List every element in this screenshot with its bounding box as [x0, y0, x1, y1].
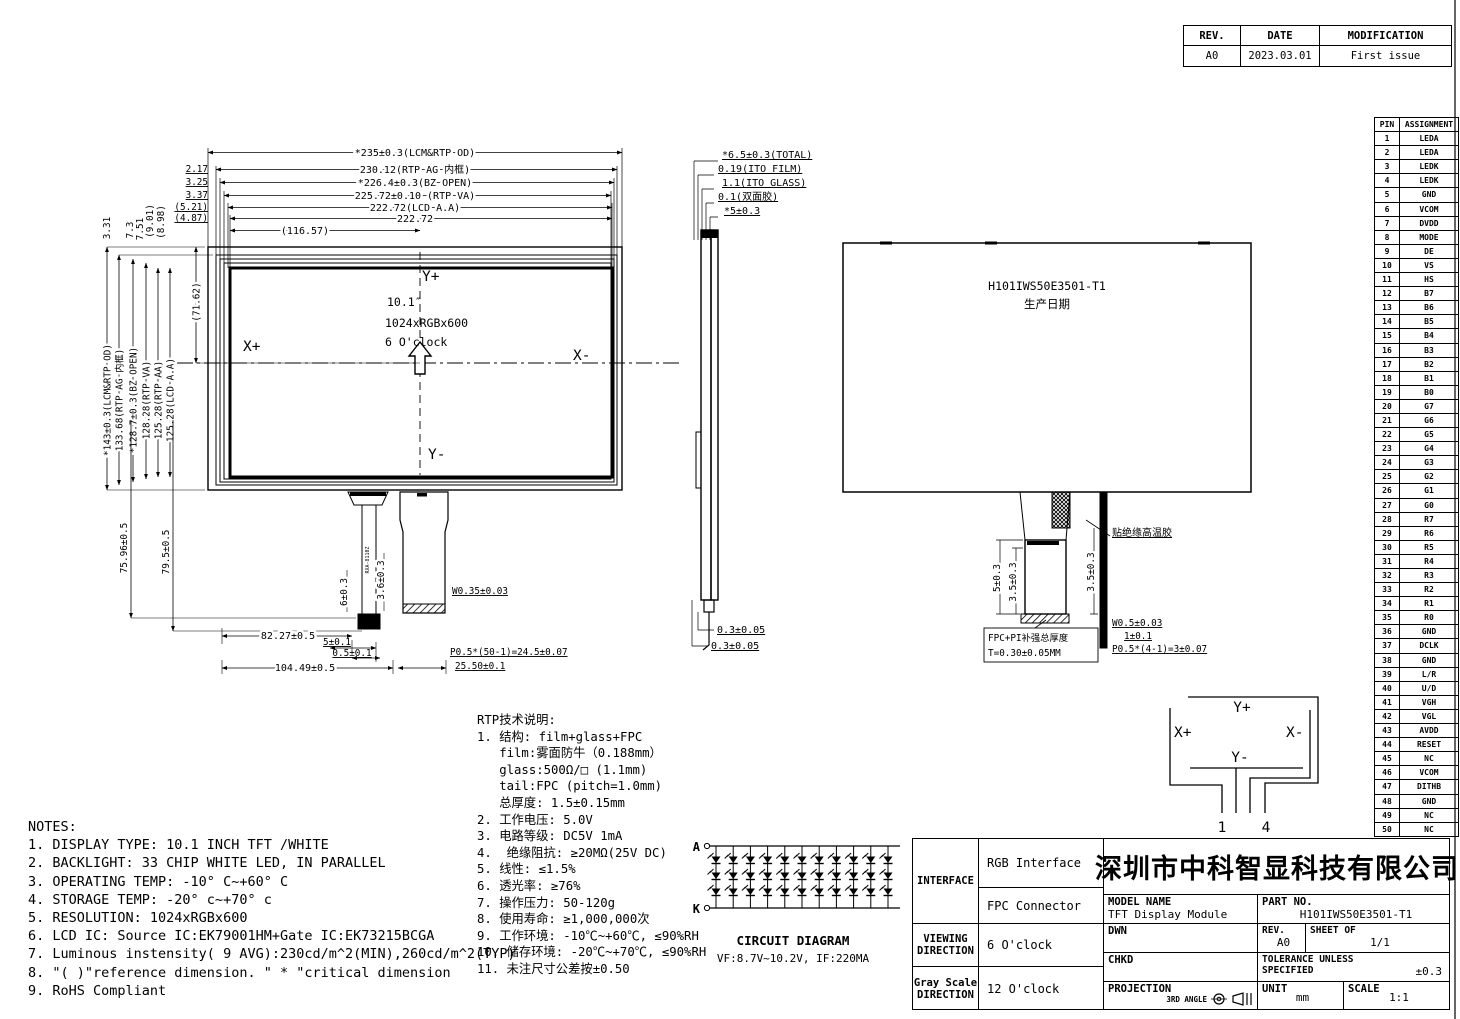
pin-number: 3 — [1375, 160, 1400, 174]
rtp-notes-lines: 1. 结构: film+glass+FPC film:雾面防牛（0.188mm）… — [477, 729, 706, 978]
pin-number: 45 — [1375, 752, 1400, 766]
pin-assignment: U/D — [1400, 681, 1459, 695]
note-line: film:雾面防牛（0.188mm） — [477, 745, 706, 762]
pin-number: 40 — [1375, 681, 1400, 695]
pin-number: 17 — [1375, 357, 1400, 371]
touch-panel-diagram: Y+ X+ X- Y- 1 4 — [1170, 697, 1318, 836]
pin-number: 48 — [1375, 794, 1400, 808]
pin-assignment: G5 — [1400, 428, 1459, 442]
pin-assignment: B3 — [1400, 343, 1459, 357]
tolerance-cell: TOLERANCE UNLESS SPECIFIED ±0.3 — [1257, 952, 1450, 981]
led-icon — [862, 853, 875, 864]
date-header: DATE — [1241, 26, 1320, 46]
pin-number: 12 — [1375, 287, 1400, 301]
dimension-label: 0.5±0.1 — [332, 648, 371, 659]
pin-assignment: VCOM — [1400, 766, 1459, 780]
main-fpc-tail — [400, 492, 448, 613]
table-row: 12B7 — [1375, 287, 1459, 301]
pin-header: PIN — [1375, 118, 1400, 132]
led-icon — [862, 869, 875, 880]
back-view: H101IWS50E3501-T1 生产日期 贴绝缘高温胶 5±0.3 3.5±… — [843, 243, 1251, 662]
pin-assignment: R7 — [1400, 512, 1459, 526]
dimension-label: 0.19(ITO FILM) — [718, 164, 802, 175]
pin-assignment: GND — [1400, 653, 1459, 667]
pin-assignment: VCOM — [1400, 202, 1459, 216]
notes-block: NOTES: 1. DISPLAY TYPE: 10.1 INCH TFT /W… — [28, 818, 516, 1000]
pin-number: 7 — [1375, 216, 1400, 230]
viewing-direction-value: 6 O'clock — [978, 923, 1103, 966]
table-row: REV. DATE MODIFICATION — [1184, 26, 1452, 46]
pin-assignment: B2 — [1400, 357, 1459, 371]
dimension-label: 104.49±0.5 — [275, 663, 335, 674]
pin-assignment: NC — [1400, 808, 1459, 822]
pin-number-label: 4 — [1262, 820, 1271, 836]
table-row: 11HS — [1375, 273, 1459, 287]
gray-scale-label-cell: Gray Scale DIRECTION — [912, 966, 978, 1010]
led-icon — [828, 853, 841, 864]
table-row: 17B2 — [1375, 357, 1459, 371]
dimension-label: 1.1(ITO GLASS) — [722, 178, 806, 189]
chkd-label: CHKD — [1108, 954, 1257, 966]
table-row: 15B4 — [1375, 329, 1459, 343]
table-row: 31R4 — [1375, 554, 1459, 568]
pin-number: 47 — [1375, 780, 1400, 794]
circuit-title: CIRCUIT DIAGRAM — [737, 933, 850, 948]
axis-label: X- — [573, 348, 590, 364]
note-line: 1. 结构: film+glass+FPC — [477, 729, 706, 746]
note-line: glass:500Ω/□ (1.1mm) — [477, 762, 706, 779]
unit-cell: UNIT mm — [1257, 981, 1343, 1010]
rev-header: REV. — [1184, 26, 1241, 46]
dimension-label: *128.7±0.3(BZ OPEN) — [129, 347, 140, 453]
pin-number: 23 — [1375, 442, 1400, 456]
pin-number: 35 — [1375, 611, 1400, 625]
table-row: 4LEDK — [1375, 174, 1459, 188]
pin-assignment: B6 — [1400, 301, 1459, 315]
dwn-label: DWN — [1108, 925, 1257, 937]
stiffener-label: T=0.30±0.05MM — [988, 648, 1061, 659]
pin-number: 36 — [1375, 625, 1400, 639]
pin-number: 27 — [1375, 498, 1400, 512]
pin-assignment: HS — [1400, 273, 1459, 287]
note-line: 4. STORAGE TEMP: -20° c~+70° c — [28, 891, 516, 909]
pin-number: 46 — [1375, 766, 1400, 780]
pin-assignment: LEDA — [1400, 146, 1459, 160]
dimension-label: 133.68(RTP AG 内框) — [114, 349, 126, 452]
pin-number: 29 — [1375, 526, 1400, 540]
led-icon — [759, 869, 772, 880]
led-icon — [828, 885, 841, 896]
pin-assignment: B5 — [1400, 315, 1459, 329]
pin-number: 49 — [1375, 808, 1400, 822]
pin-number: 4 — [1375, 174, 1400, 188]
led-icon — [776, 853, 789, 864]
led-icon — [880, 853, 893, 864]
table-row: 9DE — [1375, 244, 1459, 258]
led-icon — [759, 853, 772, 864]
tolerance-label-line2: SPECIFIED — [1262, 965, 1313, 978]
note-line: 2. BACKLIGHT: 33 CHIP WHITE LED, IN PARA… — [28, 854, 516, 872]
led-icon — [725, 853, 738, 864]
led-icon — [742, 869, 755, 880]
pin-number: 42 — [1375, 709, 1400, 723]
pin-number: 34 — [1375, 597, 1400, 611]
note-line: 4. 绝缘阻抗: ≥20MΩ(25V DC) — [477, 845, 706, 862]
table-row: 6VCOM — [1375, 202, 1459, 216]
pin-assignment: LEDK — [1400, 160, 1459, 174]
panel-resolution-label: 1024xRGBx600 — [385, 316, 468, 330]
part-no-label: PART NO. — [1262, 896, 1450, 908]
sheet-label: SHEET OF — [1310, 925, 1450, 936]
dimension-label: (4.87) — [174, 213, 208, 224]
pin-assignment: DE — [1400, 244, 1459, 258]
fpc-part-label: RXA-8110Z — [365, 546, 371, 573]
led-icon — [776, 869, 789, 880]
dimension-label: *5±0.3 — [724, 206, 760, 217]
pin-assignment: B4 — [1400, 329, 1459, 343]
pin-assignment: B1 — [1400, 371, 1459, 385]
dwn-cell: DWN — [1103, 923, 1257, 952]
gray-scale-label-line2: DIRECTION — [917, 989, 974, 1001]
pin-number: 24 — [1375, 456, 1400, 470]
pin-number: 8 — [1375, 230, 1400, 244]
led-icon — [794, 853, 807, 864]
pin-assignment: R4 — [1400, 554, 1459, 568]
table-row: 14B5 — [1375, 315, 1459, 329]
pin-number: 5 — [1375, 188, 1400, 202]
table-row: 43AVDD — [1375, 724, 1459, 738]
dimension-label: 230.12(RTP AG 内框) — [360, 163, 470, 176]
table-row: 2LEDA — [1375, 146, 1459, 160]
dimension-label: 5±0.1 — [323, 637, 351, 648]
rev-cell-value: A0 — [1262, 936, 1305, 949]
pin-assignment: B7 — [1400, 287, 1459, 301]
tolerance-value: ±0.3 — [1416, 965, 1443, 978]
gray-scale-label-line1: Gray Scale — [914, 977, 977, 989]
circuit-diagram: A K CIRCUIT DIAGRAM VF:8.7V~10.2V, IF:22… — [693, 840, 900, 965]
table-row: 33R2 — [1375, 583, 1459, 597]
table-row: 48GND — [1375, 794, 1459, 808]
part-no-value: H101IWS50E3501-T1 — [1262, 908, 1450, 921]
led-icon — [880, 869, 893, 880]
pin-number: 28 — [1375, 512, 1400, 526]
pin-assignment: NC — [1400, 822, 1459, 836]
note-line: 9. RoHS Compliant — [28, 982, 516, 1000]
stiffener-label: FPC+PI补强总厚度 — [988, 632, 1068, 644]
pin-number: 44 — [1375, 738, 1400, 752]
viewing-label-line2: DIRECTION — [917, 945, 974, 957]
dimension-label: P0.5*(50-1)=24.5±0.07 — [450, 647, 568, 658]
axis-label: X+ — [243, 339, 261, 355]
contact-fingers — [403, 604, 445, 613]
model-name-label: MODEL NAME — [1108, 896, 1257, 908]
pin-assignment: RESET — [1400, 738, 1459, 752]
pin-number: 30 — [1375, 540, 1400, 554]
notes-lines: 1. DISPLAY TYPE: 10.1 INCH TFT /WHITE2. … — [28, 836, 516, 1000]
dimension-label: (116.57) — [281, 226, 329, 237]
pin-number: 33 — [1375, 583, 1400, 597]
pin-number: 10 — [1375, 258, 1400, 272]
pin-assignment: R6 — [1400, 526, 1459, 540]
note-line: 6. LCD IC: Source IC:EK79001HM+Gate IC:E… — [28, 927, 516, 945]
dimension-label: (71.62) — [192, 282, 203, 321]
projection-cell: PROJECTION 3RD ANGLE — [1103, 981, 1257, 1010]
backlight-connector — [358, 614, 380, 629]
table-row: 44RESET — [1375, 738, 1459, 752]
rev-value: A0 — [1184, 46, 1241, 67]
note-line: 3. OPERATING TEMP: -10° C~+60° C — [28, 873, 516, 891]
rtp-notes-title: RTP技术说明: — [477, 712, 706, 729]
table-row: 36GND — [1375, 625, 1459, 639]
chkd-cell: CHKD — [1103, 952, 1257, 981]
pin-number: 39 — [1375, 667, 1400, 681]
note-line: 总厚度: 1.5±0.15mm — [477, 795, 706, 812]
led-icon — [794, 869, 807, 880]
esd-tape-patch — [1052, 492, 1070, 528]
dimension-label: 3.5±0.3 — [1008, 562, 1019, 601]
note-line: 8. 使用寿命: ≥1,000,000次 — [477, 911, 706, 928]
table-row: 37DCLK — [1375, 639, 1459, 653]
pin-number: 43 — [1375, 724, 1400, 738]
pin-number: 18 — [1375, 371, 1400, 385]
table-row: 19B0 — [1375, 385, 1459, 399]
interface-label: INTERFACE — [917, 875, 974, 887]
modification-value: First issue — [1320, 46, 1452, 67]
pin-assignment: GND — [1400, 794, 1459, 808]
pin-number: 50 — [1375, 822, 1400, 836]
note-line: 7. 操作压力: 50-120g — [477, 895, 706, 912]
axis-label: Y+ — [1233, 700, 1251, 716]
dimension-label: 0.3±0.05 — [717, 625, 765, 636]
dimension-label: *6.5±0.3(TOTAL) — [722, 150, 812, 161]
table-row: 3LEDK — [1375, 160, 1459, 174]
table-row: 1LEDA — [1375, 132, 1459, 146]
pin-assignment: G0 — [1400, 498, 1459, 512]
pin-assignment: DITHB — [1400, 780, 1459, 794]
table-row: 13B6 — [1375, 301, 1459, 315]
led-icon — [708, 869, 721, 880]
dimension-label: 125.28(RTP AA) — [154, 361, 165, 439]
dimension-label: W0.35±0.03 — [452, 586, 508, 597]
dimension-label: 225.72±0.10 (RTP VA) — [355, 191, 475, 202]
table-row: 16B3 — [1375, 343, 1459, 357]
pin-assignment: AVDD — [1400, 724, 1459, 738]
dimension-label: 3.25 — [186, 177, 208, 188]
sheet-value: 1/1 — [1310, 936, 1450, 949]
table-row: 5GND — [1375, 188, 1459, 202]
pin-assignment: GND — [1400, 625, 1459, 639]
note-line: 6. 透光率: ≥76% — [477, 878, 706, 895]
table-row: 49NC — [1375, 808, 1459, 822]
pin-number: 2 — [1375, 146, 1400, 160]
interface-value-1: RGB Interface — [978, 838, 1103, 887]
note-line: 1. DISPLAY TYPE: 10.1 INCH TFT /WHITE — [28, 836, 516, 854]
viewing-direction-label-cell: VIEWING DIRECTION — [912, 923, 978, 966]
side-view: *6.5±0.3(TOTAL) 0.19(ITO FILM) 1.1(ITO G… — [692, 150, 812, 652]
table-row: 50NC — [1375, 822, 1459, 836]
led-icon — [742, 885, 755, 896]
dimension-label: 2.17 — [186, 164, 208, 175]
table-row: 24G3 — [1375, 456, 1459, 470]
scale-cell: SCALE 1:1 — [1343, 981, 1450, 1010]
led-icon — [725, 869, 738, 880]
gray-scale-value: 12 O'clock — [978, 966, 1103, 1010]
table-row: 29R6 — [1375, 526, 1459, 540]
pin-assignment: VGH — [1400, 695, 1459, 709]
note-line: 7. Luminous instensity( 9 AVG):230cd/m^2… — [28, 945, 516, 963]
pin-number: 38 — [1375, 653, 1400, 667]
pin-assignment: R3 — [1400, 569, 1459, 583]
dimension-label: 3.6±0.3 — [376, 560, 387, 599]
note-line: 11. 未注尺寸公差按±0.50 — [477, 961, 706, 978]
rtp-tail — [1100, 492, 1107, 648]
pin-number: 1 — [1375, 132, 1400, 146]
tolerance-label-line1: TOLERANCE UNLESS — [1262, 954, 1450, 965]
rev-cell: REV. A0 — [1257, 923, 1305, 952]
pin-assignment: R5 — [1400, 540, 1459, 554]
pin-assignment: GND — [1400, 188, 1459, 202]
notes-title: NOTES: — [28, 818, 516, 836]
led-icon — [742, 853, 755, 864]
dimension-label: *143±0.3(LCM&RTP OD) — [103, 344, 114, 456]
pin-number: 21 — [1375, 413, 1400, 427]
table-row: 38GND — [1375, 653, 1459, 667]
led-icon — [725, 885, 738, 896]
modification-header: MODIFICATION — [1320, 26, 1452, 46]
pin-number: 19 — [1375, 385, 1400, 399]
dimension-label: P0.5*(4-1)=3±0.07 — [1112, 644, 1207, 655]
led-icon — [776, 885, 789, 896]
table-row: 7DVDD — [1375, 216, 1459, 230]
projection-value: 3RD ANGLE — [1166, 995, 1207, 1004]
pin-number: 6 — [1375, 202, 1400, 216]
table-row: 26G1 — [1375, 484, 1459, 498]
assignment-header: ASSIGNMENT — [1400, 118, 1459, 132]
back-model-label: H101IWS50E3501-T1 — [988, 279, 1106, 293]
led-icon — [811, 885, 824, 896]
axis-label: X+ — [1174, 725, 1192, 741]
axis-label: Y+ — [422, 269, 440, 285]
production-date-label: 生产日期 — [1024, 297, 1070, 311]
pin-assignment: R2 — [1400, 583, 1459, 597]
dimension-label: 128.28(RTP VA) — [142, 361, 153, 439]
led-icon — [828, 869, 841, 880]
side-view-outline — [696, 230, 718, 650]
pin-number-label: 1 — [1218, 820, 1227, 836]
led-icon — [811, 869, 824, 880]
dimension-label: 3.5±0.3 — [1086, 552, 1097, 591]
table-row: PIN ASSIGNMENT — [1375, 118, 1459, 132]
company-cell: 深圳市中科智显科技有限公司 — [1103, 838, 1450, 894]
axis-label: Y- — [428, 447, 445, 463]
table-row: 30R5 — [1375, 540, 1459, 554]
revision-table: REV. DATE MODIFICATION A0 2023.03.01 Fir… — [1183, 25, 1452, 67]
table-row: 40U/D — [1375, 681, 1459, 695]
pin-number: 22 — [1375, 428, 1400, 442]
table-row: 20G7 — [1375, 399, 1459, 413]
pin-number: 16 — [1375, 343, 1400, 357]
led-icon — [880, 885, 893, 896]
pin-number: 37 — [1375, 639, 1400, 653]
third-angle-projection-icon — [1211, 992, 1253, 1006]
dimension-label: 79.5±0.5 — [161, 530, 172, 575]
pin-assignment: NC — [1400, 752, 1459, 766]
tape-label: 贴绝缘高温胶 — [1112, 526, 1172, 539]
pin-number: 20 — [1375, 399, 1400, 413]
pin-assignment: VGL — [1400, 709, 1459, 723]
rev-cell-label: REV. — [1262, 925, 1305, 936]
table-row: 22G5 — [1375, 428, 1459, 442]
model-name-cell: MODEL NAME TFT Display Module — [1103, 894, 1257, 923]
model-name-value: TFT Display Module — [1108, 908, 1257, 921]
dimension-label: 0.3±0.05 — [711, 641, 759, 652]
pin-number: 9 — [1375, 244, 1400, 258]
date-value: 2023.03.01 — [1241, 46, 1320, 67]
pin-number: 14 — [1375, 315, 1400, 329]
pin-number: 31 — [1375, 554, 1400, 568]
pin-assignment: G3 — [1400, 456, 1459, 470]
dimension-label: 82.27±0.5 — [261, 631, 315, 642]
dimension-label: 1±0.1 — [1124, 631, 1152, 642]
table-row: 21G6 — [1375, 413, 1459, 427]
table-row: 25G2 — [1375, 470, 1459, 484]
pin-number: 41 — [1375, 695, 1400, 709]
note-line: 5. 线性: ≤1.5% — [477, 861, 706, 878]
dimension-label: (5.21) — [174, 202, 208, 213]
dimension-label: 3.31 — [102, 217, 113, 239]
table-row: 35R0 — [1375, 611, 1459, 625]
note-line: 2. 工作电压: 5.0V — [477, 812, 706, 829]
sheet-cell: SHEET OF 1/1 — [1305, 923, 1450, 952]
led-icon — [845, 853, 858, 864]
pin-number: 25 — [1375, 470, 1400, 484]
pin-assignment: R0 — [1400, 611, 1459, 625]
table-row: 34R1 — [1375, 597, 1459, 611]
led-icon — [845, 869, 858, 880]
note-line: 5. RESOLUTION: 1024xRGBx600 — [28, 909, 516, 927]
table-row: 8MODE — [1375, 230, 1459, 244]
interface-value-2: FPC Connector — [978, 887, 1103, 923]
dimension-label: 25.50±0.1 — [455, 661, 505, 672]
led-icon — [862, 885, 875, 896]
part-no-cell: PART NO. H101IWS50E3501-T1 — [1257, 894, 1450, 923]
table-row: 46VCOM — [1375, 766, 1459, 780]
led-icon — [759, 885, 772, 896]
table-row: 23G4 — [1375, 442, 1459, 456]
dimension-label: 222.72 — [397, 214, 433, 225]
panel-size-label: 10.1″ — [387, 295, 422, 309]
viewing-label-line1: VIEWING — [923, 933, 967, 945]
pin-number: 11 — [1375, 273, 1400, 287]
dimension-label: 0.1(双面胶) — [718, 190, 778, 203]
dimension-label: 125.28(LCD A.A) — [166, 358, 177, 442]
pin-number: 15 — [1375, 329, 1400, 343]
pin-assignment-table: PIN ASSIGNMENT 1LEDA2LEDA3LEDK4LEDK5GND6… — [1374, 117, 1459, 837]
led-icon — [708, 853, 721, 864]
note-line: 9. 工作环境: -10℃~+60℃, ≤90%RH — [477, 928, 706, 945]
dimension-label: (9.01) — [145, 204, 156, 238]
company-name: 深圳市中科智显科技有限公司 — [1095, 847, 1459, 886]
pin-assignment: DVDD — [1400, 216, 1459, 230]
pin-assignment: LEDA — [1400, 132, 1459, 146]
table-row: A0 2023.03.01 First issue — [1184, 46, 1452, 67]
dimension-label: *226.4±0.3(BZ OPEN) — [358, 178, 472, 189]
note-line: tail:FPC (pitch=1.0mm) — [477, 778, 706, 795]
table-row: 41VGH — [1375, 695, 1459, 709]
stiffener-note: FPC+PI补强总厚度 T=0.30±0.05MM — [984, 620, 1098, 662]
note-line: 8. "( )"reference dimension. " * "critic… — [28, 964, 516, 982]
pin-assignment: R1 — [1400, 597, 1459, 611]
